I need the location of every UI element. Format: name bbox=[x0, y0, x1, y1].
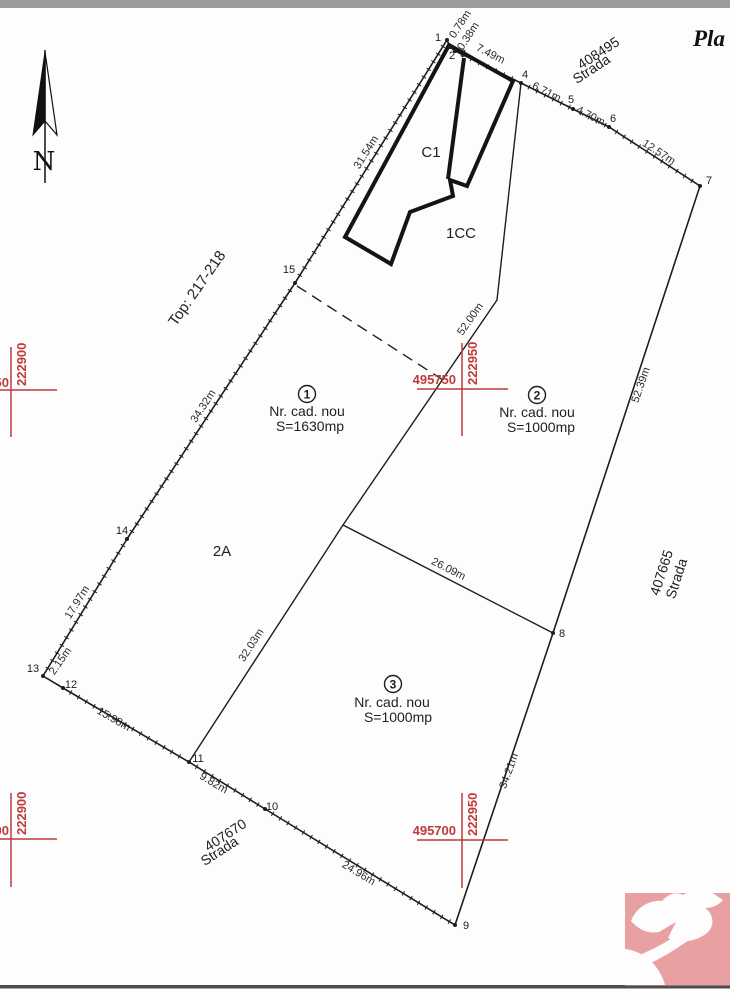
point-label: 10 bbox=[266, 801, 278, 813]
point-label: 13 bbox=[27, 663, 39, 675]
courtyard-label: 1CC bbox=[446, 225, 476, 242]
grid-y-label: 222900 bbox=[14, 792, 29, 835]
zone-label: 2A bbox=[213, 543, 231, 560]
dimension-label: 2.15m bbox=[47, 645, 74, 677]
building-c1-inner-wall bbox=[448, 58, 464, 179]
point-label: 5 bbox=[568, 94, 574, 106]
parcel-area-label: S=1630mp bbox=[276, 418, 344, 434]
point-label: 7 bbox=[706, 175, 712, 187]
dashed-boundary-line bbox=[297, 286, 443, 380]
dove-bird-logo-icon bbox=[625, 890, 730, 986]
parcel-annotation-2: 2 Nr. cad. nou S=1000mp bbox=[499, 387, 575, 436]
grid-y-label: 222950 bbox=[465, 793, 480, 836]
point-label: 4 bbox=[522, 69, 528, 81]
parcel-annotation-3: 3 Nr. cad. nou S=1000mp bbox=[354, 676, 432, 726]
parcel-number: 2 bbox=[534, 389, 541, 403]
parcel-cad-label: Nr. cad. nou bbox=[269, 403, 345, 419]
topographic-ref-label: Top: 217-218 bbox=[165, 248, 229, 329]
point-label: 9 bbox=[463, 920, 469, 932]
dimension-label: 52.39m bbox=[630, 366, 653, 405]
point-label: 14 bbox=[116, 525, 128, 537]
dimension-label: 15.98m bbox=[95, 705, 133, 734]
grid-x-label-cut: 50 bbox=[0, 375, 9, 390]
parcel-cad-label: Nr. cad. nou bbox=[499, 404, 575, 420]
dimension-label: 4.70m bbox=[574, 104, 607, 129]
point-label: 15 bbox=[283, 264, 295, 276]
grid-x-label: 495700 bbox=[413, 823, 456, 838]
grid-x-label: 495750 bbox=[413, 372, 456, 387]
point-label: 1 bbox=[435, 32, 441, 44]
bottom-rule bbox=[0, 985, 730, 989]
street-label-top: 408495 Strada bbox=[570, 33, 623, 86]
point-label: 2 bbox=[449, 50, 455, 62]
boundary-ticks bbox=[46, 45, 694, 924]
cadastral-plan-page: 495750 222950 495700 222950 50 222900 00… bbox=[0, 0, 730, 999]
street-label-bottom: 407670 Strada bbox=[198, 815, 250, 868]
divider-parcel2-parcel3 bbox=[343, 525, 553, 633]
north-letter: N bbox=[33, 147, 56, 177]
divider-parcel1-parcel3 bbox=[189, 525, 343, 762]
dimension-label: 52.00m bbox=[455, 301, 486, 338]
dimension-label: 32.03m bbox=[236, 627, 266, 664]
page-title-partial: Pla bbox=[692, 26, 725, 51]
street-label-right: 407665 Strada bbox=[646, 548, 690, 601]
dimension-label: 6.71m bbox=[530, 80, 563, 105]
dimension-label: 34.21m bbox=[497, 752, 521, 791]
north-arrow-icon: N bbox=[33, 50, 57, 183]
grid-y-label: 222900 bbox=[14, 343, 29, 386]
point-label: 8 bbox=[559, 628, 565, 640]
cadastral-plan-canvas: 495750 222950 495700 222950 50 222900 00… bbox=[0, 0, 730, 999]
parcel-annotation-1: 1 Nr. cad. nou S=1630mp bbox=[269, 386, 345, 435]
point-label: 6 bbox=[610, 113, 616, 125]
parcel-area-label: S=1000mp bbox=[364, 709, 432, 725]
parcel-number: 3 bbox=[390, 678, 397, 692]
point-label: 12 bbox=[65, 679, 77, 691]
grid-x-label-cut: 00 bbox=[0, 823, 9, 838]
parcel-area-label: S=1000mp bbox=[507, 419, 575, 435]
grid-y-label: 222950 bbox=[465, 342, 480, 385]
parcel-number: 1 bbox=[304, 388, 311, 402]
building-label: C1 bbox=[421, 144, 440, 161]
point-label: 11 bbox=[192, 753, 203, 765]
parcel-cad-label: Nr. cad. nou bbox=[354, 694, 430, 710]
top-scan-bar bbox=[0, 0, 730, 8]
